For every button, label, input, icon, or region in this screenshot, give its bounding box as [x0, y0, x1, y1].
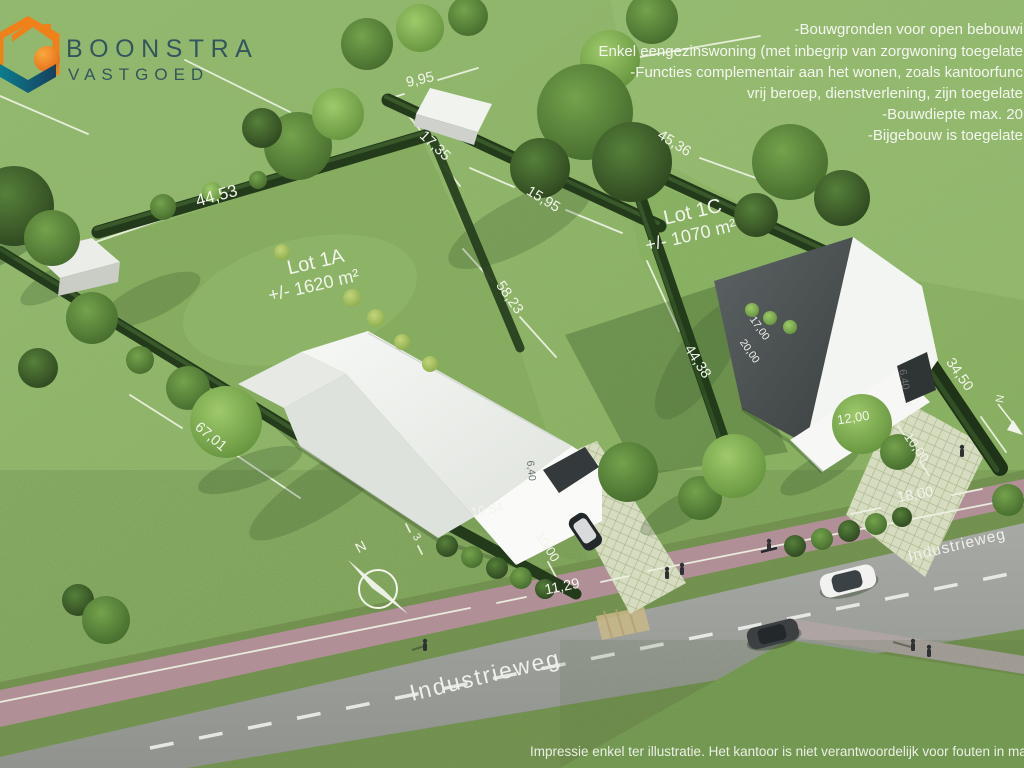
brand-name: BOONSTRA [66, 35, 258, 63]
scene: N N 44,53 9,95 17,35 15,95 45,36 58,23 4… [0, 0, 1024, 768]
regulation-line-2: Enkel eengezinswoning (met inbegrip van … [599, 43, 1023, 60]
regulation-line-5: -Bouwdiepte max. 20 [882, 106, 1023, 123]
regulation-line-3: -Functies complementair aan het wonen, z… [630, 64, 1023, 81]
regulation-line-6: -Bijgebouw is toegelate [868, 127, 1023, 144]
dim-6-40-left: 6,40 [524, 460, 538, 482]
brand-sub: VASTGOED [68, 65, 209, 84]
regulation-line-1: -Bouwgronden voor open bebouwi [795, 21, 1024, 38]
regulation-line-4: vrij beroep, dienstverlening, zijn toege… [747, 85, 1023, 102]
site-plan-render: N N 44,53 9,95 17,35 15,95 45,36 58,23 4… [0, 0, 1024, 768]
disclaimer-text: Impressie enkel ter illustratie. Het kan… [530, 744, 1024, 759]
